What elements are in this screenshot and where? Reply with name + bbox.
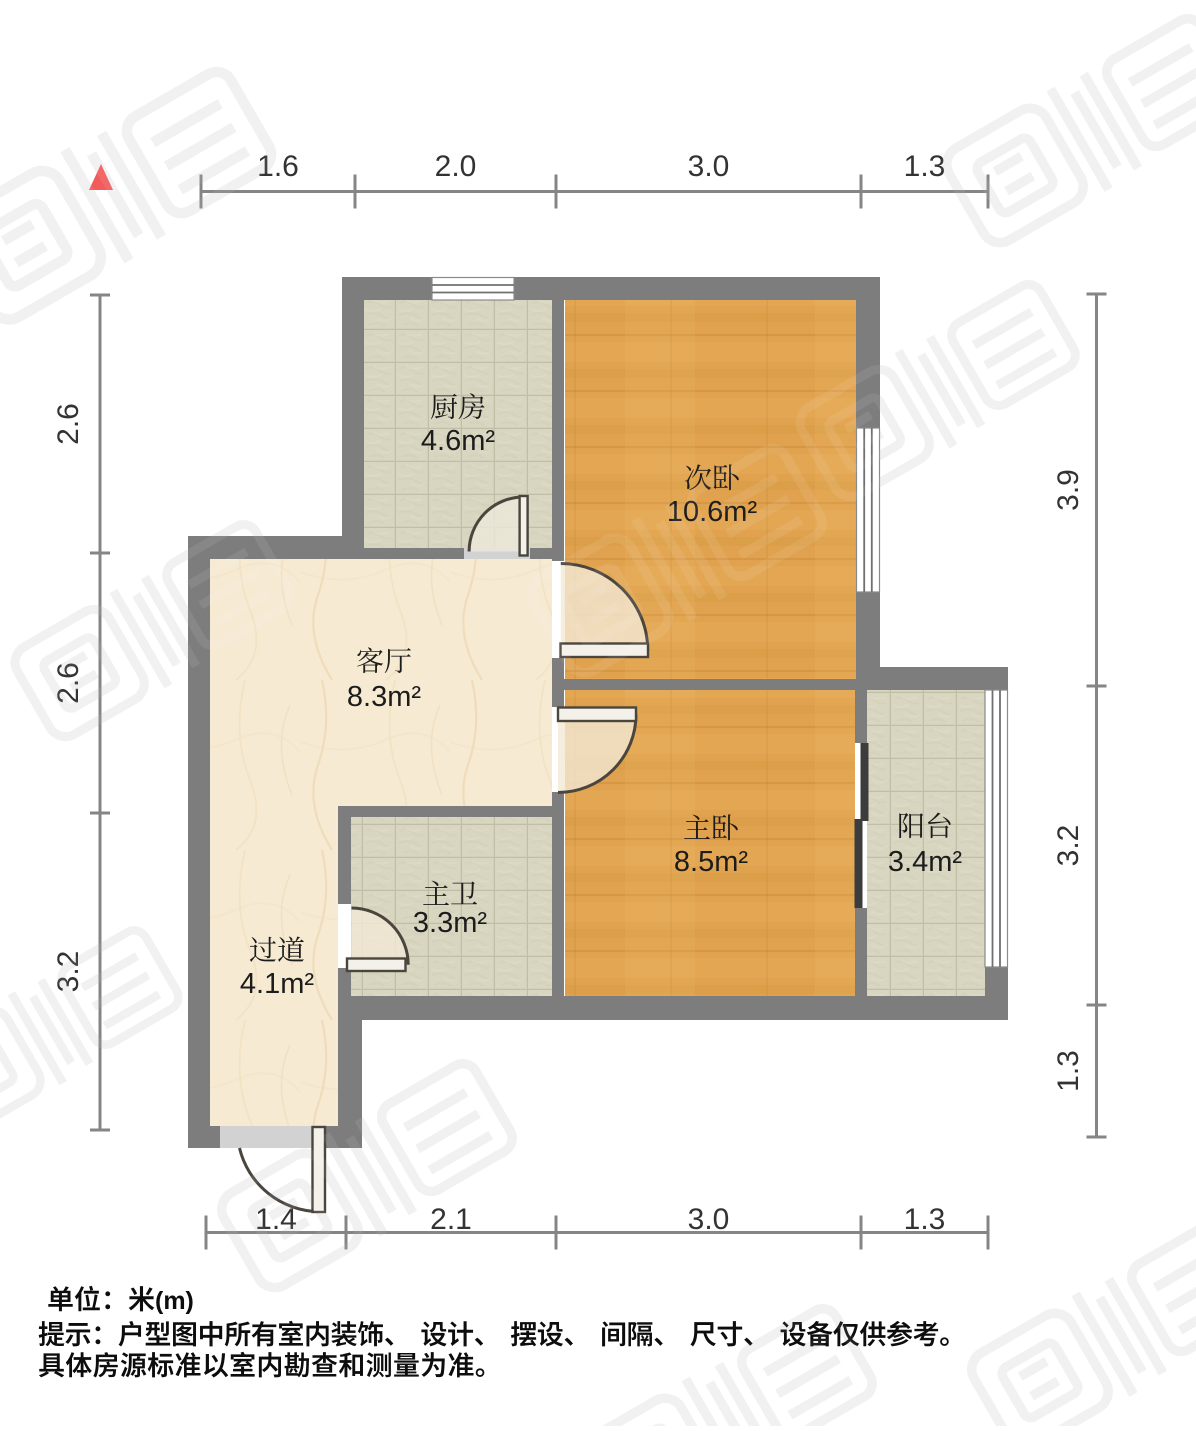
- svg-text:3.3m²: 3.3m²: [413, 907, 487, 939]
- svg-text:1.3: 1.3: [1052, 1050, 1085, 1092]
- svg-text:2.0: 2.0: [435, 150, 477, 183]
- svg-text:2.1: 2.1: [430, 1203, 472, 1236]
- svg-text:4.1m²: 4.1m²: [240, 968, 314, 1000]
- svg-text:3.0: 3.0: [688, 150, 730, 183]
- svg-text:8.5m²: 8.5m²: [674, 846, 748, 878]
- svg-text:1.3: 1.3: [904, 150, 946, 183]
- svg-text:8.3m²: 8.3m²: [347, 681, 421, 713]
- svg-text:3.9: 3.9: [1052, 469, 1085, 511]
- svg-text:3.0: 3.0: [688, 1203, 730, 1236]
- svg-text:3.4m²: 3.4m²: [888, 846, 962, 878]
- svg-text:1.3: 1.3: [904, 1203, 946, 1236]
- svg-text:3.2: 3.2: [1052, 825, 1085, 867]
- svg-text:4.6m²: 4.6m²: [421, 425, 495, 457]
- svg-text:2.6: 2.6: [52, 403, 85, 445]
- svg-text:(m): (m): [155, 1287, 194, 1315]
